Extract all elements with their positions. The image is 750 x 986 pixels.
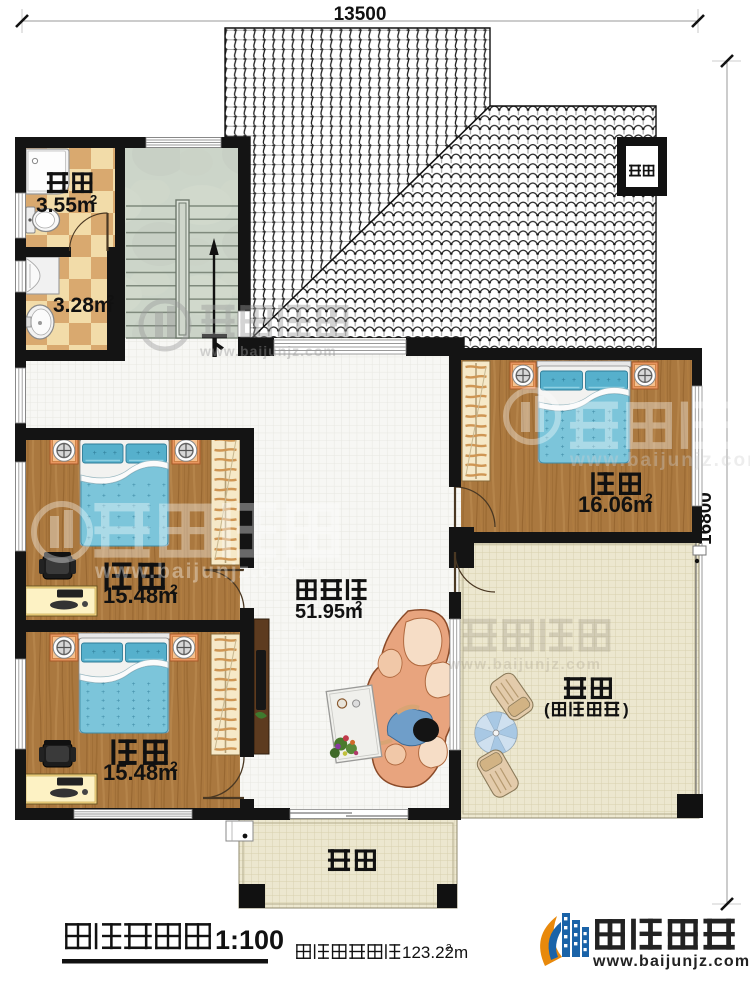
svg-text:+: +	[132, 493, 136, 500]
svg-text:www.baijunjz.com: www.baijunjz.com	[447, 656, 601, 673]
svg-text:+: +	[132, 689, 136, 696]
svg-text:51.95m: 51.95m	[295, 601, 363, 623]
svg-text:+: +	[132, 706, 136, 713]
svg-text:+: +	[86, 681, 90, 688]
svg-text:+: +	[562, 377, 566, 384]
svg-text:+: +	[551, 377, 555, 384]
svg-text:+: +	[545, 418, 549, 425]
svg-text:+: +	[561, 418, 565, 425]
svg-text:+: +	[93, 450, 97, 457]
svg-text:2: 2	[90, 192, 97, 207]
svg-text:+: +	[162, 714, 166, 721]
svg-text:+: +	[117, 535, 121, 542]
svg-text:15.48m: 15.48m	[103, 583, 178, 608]
svg-text:+: +	[117, 482, 121, 489]
svg-text:+: +	[592, 435, 596, 442]
svg-text:3.55m: 3.55m	[36, 194, 96, 217]
svg-text:+: +	[116, 697, 120, 704]
svg-text:+: +	[147, 535, 151, 542]
svg-text:+: +	[101, 722, 105, 729]
svg-text:+: +	[112, 649, 116, 656]
svg-text:+: +	[102, 482, 106, 489]
svg-text:2: 2	[170, 758, 178, 774]
svg-text:+: +	[545, 443, 549, 450]
svg-text:+: +	[146, 450, 150, 457]
svg-text:www.baijunjz.com: www.baijunjz.com	[94, 560, 308, 583]
svg-text:+: +	[86, 697, 90, 704]
svg-text:+: +	[162, 681, 166, 688]
svg-text:+: +	[132, 714, 136, 721]
svg-text:+: +	[101, 714, 105, 721]
svg-text:): )	[623, 700, 629, 719]
svg-text:+: +	[136, 450, 140, 457]
svg-text:16.06m: 16.06m	[578, 492, 653, 517]
svg-text:+: +	[113, 450, 117, 457]
svg-text:+: +	[132, 722, 136, 729]
svg-text:2: 2	[355, 598, 362, 613]
svg-text:+: +	[561, 409, 565, 416]
svg-text:+: +	[147, 689, 151, 696]
svg-text:+: +	[102, 649, 106, 656]
svg-text:+: +	[596, 377, 600, 384]
svg-text:+: +	[87, 503, 91, 510]
svg-text:2: 2	[645, 490, 653, 506]
svg-text:+: +	[102, 493, 106, 500]
svg-text:+: +	[147, 722, 151, 729]
svg-text:+: +	[162, 689, 166, 696]
svg-text:+: +	[147, 514, 151, 521]
svg-text:+: +	[92, 649, 96, 656]
svg-text:+: +	[132, 482, 136, 489]
svg-text:www.baijunjz.com: www.baijunjz.com	[569, 450, 750, 471]
svg-text:+: +	[86, 706, 90, 713]
svg-text:+: +	[561, 452, 565, 459]
svg-text:+: +	[592, 409, 596, 416]
svg-text:(: (	[544, 700, 550, 719]
svg-text:+: +	[101, 697, 105, 704]
svg-text:+: +	[87, 493, 91, 500]
svg-text:+: +	[162, 482, 166, 489]
svg-text:+: +	[607, 377, 611, 384]
svg-text:+: +	[617, 377, 621, 384]
svg-text:+: +	[572, 377, 576, 384]
svg-text:+: +	[162, 706, 166, 713]
svg-text:+: +	[132, 697, 136, 704]
svg-text:+: +	[132, 681, 136, 688]
svg-text:+: +	[545, 452, 549, 459]
svg-text:+: +	[147, 681, 151, 688]
svg-text:123.22m: 123.22m	[402, 943, 468, 962]
svg-text:+: +	[561, 426, 565, 433]
svg-text:+: +	[101, 681, 105, 688]
svg-text:+: +	[156, 450, 160, 457]
svg-text:+: +	[116, 689, 120, 696]
svg-text:+: +	[162, 722, 166, 729]
svg-text:13500: 13500	[334, 4, 387, 25]
svg-text:+: +	[162, 697, 166, 704]
svg-text:+: +	[147, 714, 151, 721]
svg-text:+: +	[116, 706, 120, 713]
svg-text:+: +	[86, 722, 90, 729]
svg-text:+: +	[116, 714, 120, 721]
svg-text:+: +	[162, 493, 166, 500]
svg-text:+: +	[545, 409, 549, 416]
svg-text:2: 2	[170, 581, 178, 597]
svg-text:+: +	[101, 706, 105, 713]
svg-text:+: +	[147, 493, 151, 500]
svg-text:+: +	[156, 649, 160, 656]
svg-text:+: +	[87, 482, 91, 489]
svg-text:+: +	[147, 706, 151, 713]
svg-text:+: +	[101, 689, 105, 696]
svg-text:+: +	[117, 493, 121, 500]
svg-text:+: +	[561, 443, 565, 450]
svg-text:+: +	[116, 681, 120, 688]
svg-text:+: +	[146, 649, 150, 656]
svg-text:+: +	[147, 697, 151, 704]
svg-text:www.baijunjz.com: www.baijunjz.com	[592, 953, 750, 970]
svg-text:3.28m: 3.28m	[53, 294, 113, 317]
svg-text:1:100: 1:100	[215, 925, 284, 955]
svg-text:2: 2	[107, 292, 114, 307]
svg-text:+: +	[561, 435, 565, 442]
svg-text:+: +	[117, 514, 121, 521]
svg-text:+: +	[86, 689, 90, 696]
svg-text:+: +	[116, 722, 120, 729]
svg-text:15.48m: 15.48m	[103, 760, 178, 785]
svg-text:+: +	[103, 450, 107, 457]
svg-text:+: +	[136, 649, 140, 656]
svg-text:+: +	[86, 714, 90, 721]
svg-text:+: +	[147, 482, 151, 489]
svg-text:www.baijunjz.com: www.baijunjz.com	[199, 343, 337, 359]
svg-text:2: 2	[446, 943, 452, 954]
